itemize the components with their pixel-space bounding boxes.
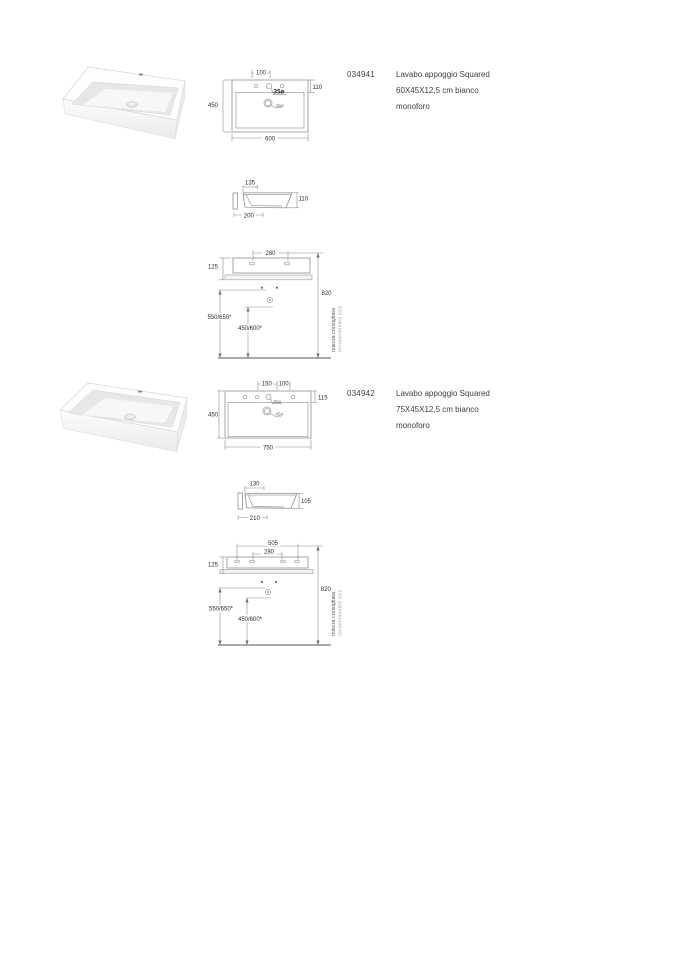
sink-profile xyxy=(238,493,297,509)
description-line: 75X45X12,5 cm bianco xyxy=(396,402,490,418)
description-line: Lavabo appoggio Squared xyxy=(396,386,490,402)
dim-overall-height: 820 xyxy=(321,587,332,593)
description-line: monoforo xyxy=(396,418,490,434)
dim-drain: 45ø xyxy=(276,103,284,108)
product-code-2: 034942 xyxy=(347,386,375,402)
dim-drain: 45ø xyxy=(275,411,283,416)
note-recommended-size-en: recommended size xyxy=(338,590,344,636)
description-line: Lavabo appoggio Squared xyxy=(396,67,490,83)
description-line: 60X45X12,5 cm bianco xyxy=(396,83,490,99)
product-description-2: Lavabo appoggio Squared 75X45X12,5 cm bi… xyxy=(396,386,490,434)
dim-width: 600 xyxy=(265,136,276,142)
dim-faucet-hole: 35ø xyxy=(273,399,281,404)
dim-basin-inset: 135 xyxy=(245,181,256,187)
dimension-lines xyxy=(208,540,332,646)
dim-faucet-offset: 100 xyxy=(256,70,267,76)
note-recommended-size-en: recommended size xyxy=(338,306,344,352)
faucet-hole xyxy=(138,390,142,392)
product-code-1: 034941 xyxy=(347,67,375,83)
dim-wall-ledge: 200 xyxy=(244,213,255,219)
top-view-drawing-1: 100 110 450 600 35ø 45ø xyxy=(205,65,335,150)
dim-body-height: 125 xyxy=(208,265,219,271)
side-view-drawing-1: 135 110 200 xyxy=(225,175,313,225)
dim-drain-height: 450/600* xyxy=(238,326,263,332)
sink-photo-render xyxy=(60,383,187,452)
installation-drawing-2: 505 280 125 550/650* 450/600* 820 misura… xyxy=(195,535,350,653)
top-view-drawing-2: 150 100 115 450 750 35ø 45ø xyxy=(205,376,340,456)
dim-height: 105 xyxy=(301,499,312,505)
product-photo-2 xyxy=(55,375,195,460)
description-line: monoforo xyxy=(396,99,490,115)
catalog-page: 100 110 450 600 35ø 45ø 034941 Lavabo ap… xyxy=(0,0,678,959)
product-description-1: Lavabo appoggio Squared 60X45X12,5 cm bi… xyxy=(396,67,490,115)
sink-photo-render xyxy=(63,67,185,139)
note-recommended-size-it: misura consigliata xyxy=(331,307,337,352)
product-photo-1 xyxy=(60,62,195,147)
dim-depth: 450 xyxy=(208,103,219,109)
dim-wall-ledge: 210 xyxy=(250,516,261,522)
side-view-drawing-2: 130 105 210 xyxy=(225,478,317,526)
dim-overall-height: 820 xyxy=(321,291,332,297)
sink-outline xyxy=(225,391,311,438)
faucet-hole xyxy=(139,73,143,75)
dim-faucet-offset: 100 xyxy=(279,381,290,387)
dim-width: 750 xyxy=(263,445,274,451)
dim-rim-depth: 115 xyxy=(318,396,328,402)
dim-drain-height: 450/600* xyxy=(238,617,263,623)
dim-body-height: 125 xyxy=(208,563,219,569)
dim-outer-hole-spacing: 505 xyxy=(268,541,279,547)
dim-hole-spacing: 280 xyxy=(264,549,275,555)
dim-faucet-hole: 35ø xyxy=(274,89,285,96)
sink-outline xyxy=(232,80,308,132)
sink-rear-view xyxy=(220,557,313,595)
installation-drawing-1: 280 125 550/650* 450/600* 820 misura con… xyxy=(195,240,350,365)
dim-hole-spacing: 280 xyxy=(265,251,276,257)
dim-rim-height: 550/650* xyxy=(207,315,232,321)
dim-outer-hole-offset: 150 xyxy=(262,381,273,387)
dim-rim-depth: 110 xyxy=(313,85,323,91)
dim-depth: 450 xyxy=(208,413,219,419)
sink-profile xyxy=(233,193,292,209)
dim-height: 110 xyxy=(299,197,309,203)
note-recommended-size-it: misura consigliata xyxy=(331,591,337,636)
dim-rim-height: 550/650* xyxy=(209,607,234,613)
sink-rear-view xyxy=(225,258,312,303)
dim-basin-inset: 130 xyxy=(249,481,260,487)
